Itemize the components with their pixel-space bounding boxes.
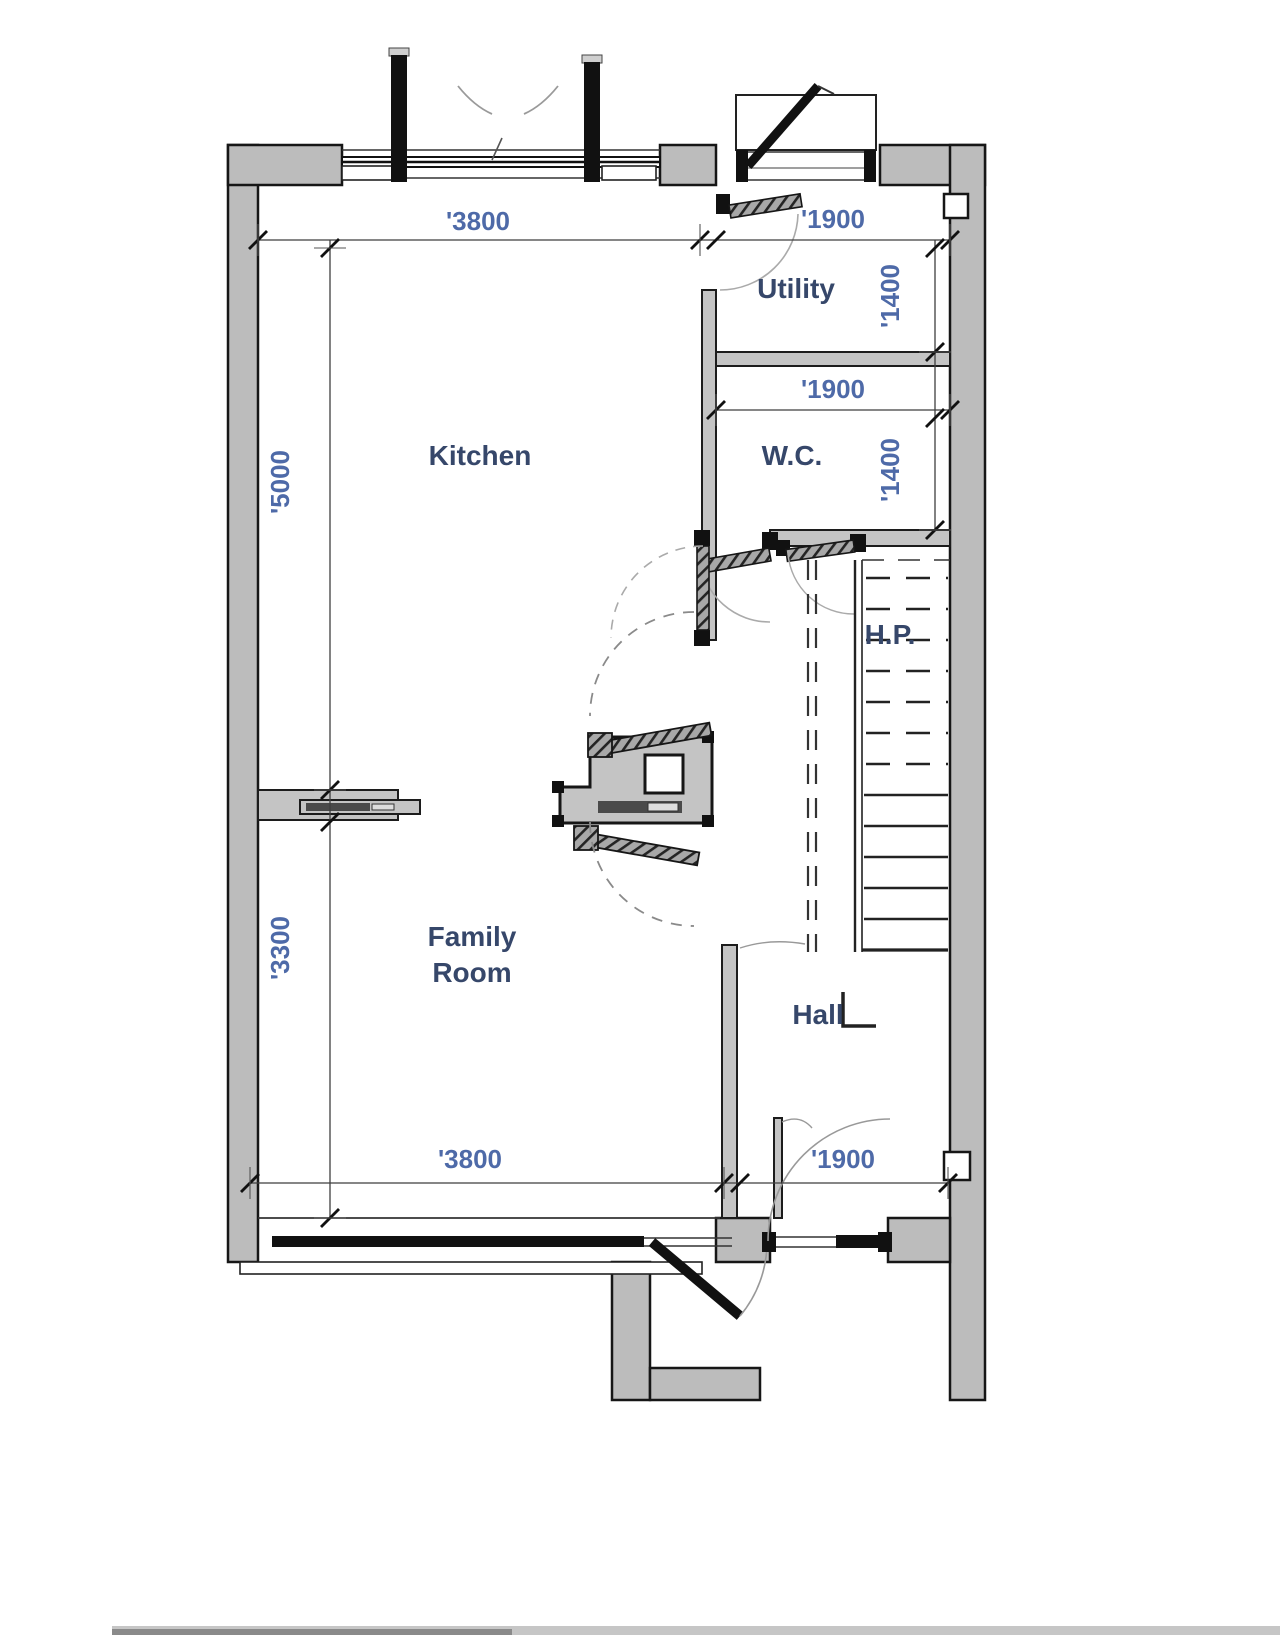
dim-wc-depth: '1400 [875,438,905,502]
hp-label: H.P. [865,619,916,650]
glazed-screen-bar [272,1236,644,1247]
window-mullion-left [391,55,407,182]
dim-family-width: '3800 [438,1144,502,1174]
family-room-label-line2: Room [432,957,511,988]
dim-family-depth: '3300 [265,916,295,980]
meter-box-top [944,194,968,218]
hall-door-hints [740,942,812,1128]
window-swing-right [524,86,558,114]
wall-bottom-hall-right [888,1218,950,1262]
wall-right [950,145,985,1400]
dim-utility-depth: '1400 [875,264,905,328]
wall-top-pier [660,145,716,185]
dim-kitchen-width: '3800 [446,206,510,236]
utility-label: Utility [757,273,835,304]
chimney-flue [645,755,683,793]
floor-plan-page: '3800 '1900 '1400 '1900 '1400 '5000 '330… [0,0,1280,1635]
window-swing-left [458,86,492,114]
family-glazed-screen [240,1218,767,1316]
stairs-treads-upper [866,578,948,764]
kitchen-window [342,48,660,182]
hp-door [776,534,866,614]
wall-utility-wc [716,352,950,366]
page-edge-artifact [112,1626,1280,1635]
porch-wall-bottom [650,1368,760,1400]
porch-wall-left [612,1262,650,1400]
hall-label: Hall [792,999,843,1030]
floor-plan-drawing: '3800 '1900 '1400 '1900 '1400 '5000 '330… [0,0,1280,1635]
wall-hall-jamb [774,1118,782,1218]
family-room-label-line1: Family [428,921,517,952]
front-door-leaf [836,1235,878,1248]
stairs-rail-dashed [808,560,816,952]
labels: '3800 '1900 '1400 '1900 '1400 '5000 '330… [265,204,915,1174]
dim-wc-width: '1900 [801,374,865,404]
stairs-newel-mark [843,992,876,1026]
back-door-leaf [748,86,818,166]
window-mullion-right [584,62,600,182]
back-door [736,86,876,182]
dim-hall-width: '1900 [811,1144,875,1174]
kitchen-door [611,530,710,646]
wall-bottom-hall-left [716,1218,770,1262]
kitchen-label: Kitchen [429,440,532,471]
wc-label: W.C. [762,440,823,471]
pocket-door-west [300,800,420,814]
wall-top-left-block [228,145,342,185]
wall-left [228,145,258,1262]
stairs-treads-lower [862,795,948,950]
dim-kitchen-depth: '5000 [265,450,295,514]
dim-utility-width: '1900 [801,204,865,234]
